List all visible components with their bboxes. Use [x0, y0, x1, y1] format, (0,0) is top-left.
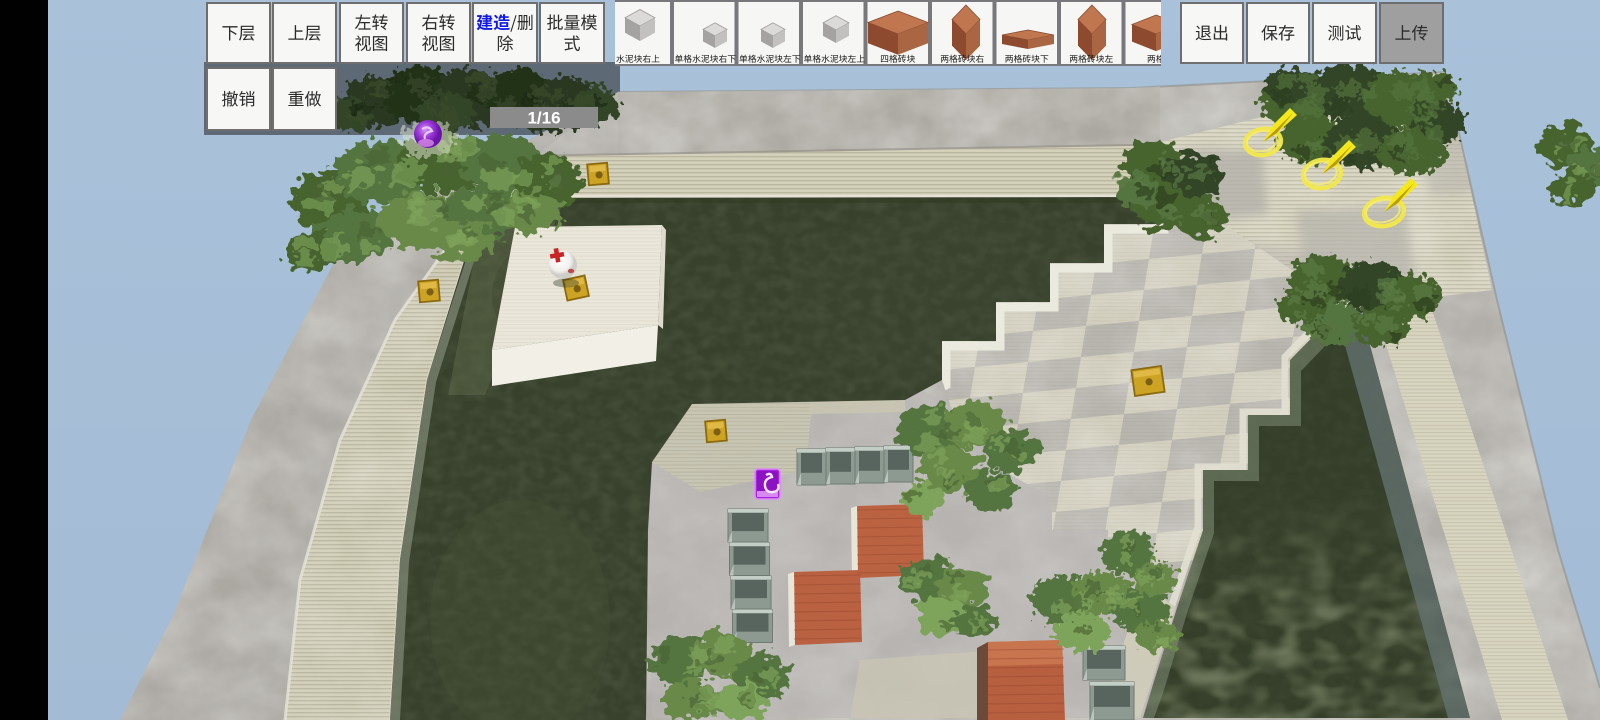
- svg-text:1/16: 1/16: [527, 109, 560, 128]
